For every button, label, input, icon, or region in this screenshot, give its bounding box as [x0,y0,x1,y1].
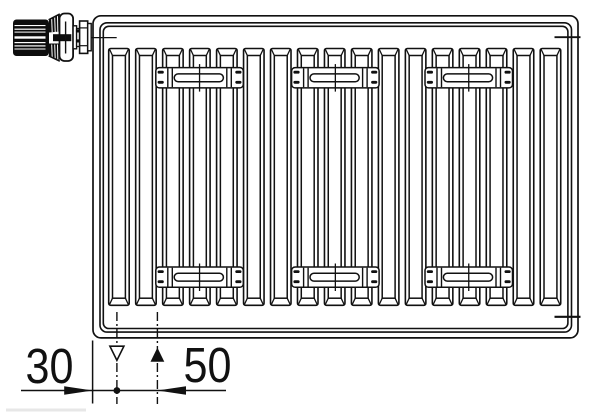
svg-text:50: 50 [184,337,232,392]
svg-text:30: 30 [26,338,74,393]
